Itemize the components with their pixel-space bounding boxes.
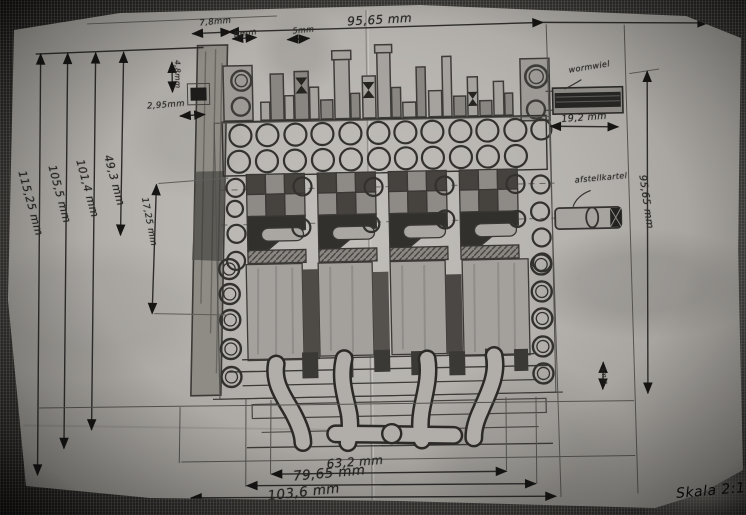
pencil-drawing-tilt-wrapper: Fig.3 95,65 mm 7,8mm 8mm 5mm 4,8mm 2,95m… [0, 0, 746, 515]
crankshaft-assembly [223, 41, 551, 127]
knurl-part [555, 190, 622, 229]
worm-wheel-part [545, 79, 623, 115]
pencil-drawing [0, 0, 746, 515]
drawing-paper-sheet: Fig.3 95,65 mm 7,8mm 8mm 5mm 4,8mm 2,95m… [0, 0, 746, 515]
photo-of-technical-drawing: Fig.3 95,65 mm 7,8mm 8mm 5mm 4,8mm 2,95m… [0, 0, 746, 515]
bearing-plate-circles [222, 115, 552, 176]
dim-label-4-8mm: 4,8mm [173, 60, 183, 89]
